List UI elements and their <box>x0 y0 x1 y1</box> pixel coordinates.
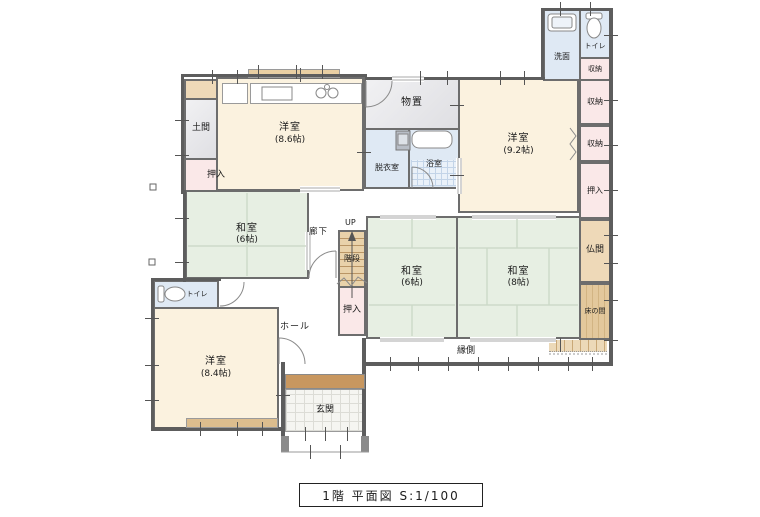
room-label-monooki: 物置 <box>401 97 423 108</box>
label-rouka: 廊下 <box>309 225 328 237</box>
genkan-post <box>281 436 289 452</box>
wall-bottom-east <box>365 362 613 366</box>
room-label-kaidan: 階段 <box>344 254 360 263</box>
room-label-shuunou-1: 収納 <box>588 65 602 73</box>
wall-top-center <box>365 77 545 80</box>
freestanding-post <box>150 184 156 190</box>
wall-senmen-left <box>541 8 544 80</box>
dimension-tick <box>524 71 525 85</box>
room-label-tokonoma: 床の間 <box>585 307 606 315</box>
dimension-tick <box>340 445 341 459</box>
kitchen-counter <box>250 83 362 104</box>
room-doma: 土間 <box>184 98 218 160</box>
room-oshiire-under-stairs: 押入 <box>338 286 366 336</box>
room-butsuma: 仏間 <box>579 219 611 283</box>
dimension-tick <box>604 263 618 264</box>
dimension-tick <box>508 357 509 371</box>
dimension-tick <box>604 145 618 146</box>
dimension-tick <box>604 190 618 191</box>
room-label-doma: 土間 <box>192 123 210 133</box>
room-label-oshiire-northwest: 押入 <box>207 170 225 180</box>
stairs-up-label: UP <box>345 218 356 227</box>
dimension-tick <box>145 365 159 366</box>
wall-west-washitsu <box>183 190 186 282</box>
dimension-tick <box>590 2 591 16</box>
room-size-youshitsu-8-4: (8.4帖) <box>201 369 231 380</box>
dimension-tick <box>347 427 348 441</box>
dimension-tick <box>325 427 326 441</box>
room-tokonoma: 床の間 <box>579 283 611 340</box>
dimension-tick <box>300 68 301 82</box>
room-label-butsuma: 仏間 <box>586 245 604 255</box>
room-label-hall: ホール <box>280 322 310 332</box>
label-hall: ホール <box>280 319 310 332</box>
dimension-tick <box>418 357 419 371</box>
genkan-post <box>361 436 369 452</box>
dimension-tick <box>357 152 371 153</box>
dimension-tick <box>305 427 306 441</box>
room-washitsu-8: 和室 (8帖) <box>456 216 581 339</box>
wall-east <box>609 8 613 366</box>
room-label-toire-west: トイレ <box>187 290 208 298</box>
refrigerator <box>222 83 248 104</box>
freestanding-post <box>149 259 155 265</box>
dimension-tick <box>175 262 189 263</box>
hall-door-arc <box>279 338 305 364</box>
room-washitsu-6-center: 和室 (6帖) <box>366 216 458 339</box>
drawing-title: 1階 平面図 S:1/100 <box>322 487 460 504</box>
room-label-washitsu-8: 和室 <box>508 266 530 277</box>
room-youshitsu-9-2: 洋室 (9.2帖) <box>458 77 579 213</box>
dimension-tick <box>390 357 391 371</box>
dimension-tick <box>450 105 464 106</box>
room-senmen: 洗面 <box>543 9 581 81</box>
dimension-tick <box>212 70 213 84</box>
dimension-tick <box>276 395 290 396</box>
room-label-washitsu-6a: 和室 <box>236 223 258 234</box>
room-label-youshitsu-9-2: 洋室 <box>508 133 530 144</box>
room-size-washitsu-6a: (6帖) <box>236 235 258 246</box>
dimension-tick <box>262 422 263 436</box>
genkan-step <box>285 374 365 389</box>
dimension-tick <box>604 100 618 101</box>
dimension-tick <box>450 175 464 176</box>
dimension-tick <box>560 338 561 352</box>
room-label-senmen: 洗面 <box>554 52 570 61</box>
dimension-tick <box>200 422 201 436</box>
dimension-tick <box>500 71 501 85</box>
room-size-youshitsu-9-2: (9.2帖) <box>503 146 533 157</box>
wall-top-west <box>181 74 367 77</box>
dimension-tick <box>175 218 189 219</box>
dimension-tick <box>420 71 421 85</box>
dimension-tick <box>560 2 561 16</box>
dimension-tick <box>592 357 593 371</box>
room-label-datsuishitsu: 脱衣室 <box>375 163 399 172</box>
toilet-vestibule-door-arc <box>220 282 244 306</box>
room-datsuishitsu: 脱衣室 <box>364 128 410 189</box>
room-shuunou-1: 収納 <box>579 57 611 81</box>
room-kaidan: 階段 <box>338 230 366 288</box>
room-toire-west: トイレ <box>153 280 219 309</box>
dimension-tick <box>322 65 323 79</box>
room-size-kitchen: (8.6帖) <box>275 135 305 146</box>
room-shuunou-3: 収納 <box>579 125 611 162</box>
corridor-door-arc <box>309 251 336 278</box>
room-size-washitsu-8: (8帖) <box>508 278 530 289</box>
dimension-tick <box>258 65 259 79</box>
dimension-tick <box>604 340 618 341</box>
room-youshitsu-8-4: 洋室 (8.4帖) <box>153 307 279 429</box>
room-label-toire-northeast: トイレ <box>585 42 606 50</box>
room-label-shuunou-3: 収納 <box>587 139 603 148</box>
dimension-tick <box>175 120 189 121</box>
dimension-tick <box>568 357 569 371</box>
dimension-tick <box>310 445 311 459</box>
engawa-wood-step <box>549 340 607 352</box>
label-up: UP <box>345 218 356 227</box>
room-label-oshiire-under-stairs: 押入 <box>343 305 361 315</box>
floor-plan-canvas: 土間 押入 洋室 (8.6帖) 物置 脱衣室 浴室 洋室 (9.2帖) 洗面 ト… <box>0 0 760 517</box>
room-label-shuunou-2: 収納 <box>587 97 603 106</box>
room-shuunou-2: 収納 <box>579 79 611 125</box>
dimension-tick <box>296 65 297 79</box>
dimension-tick <box>145 318 159 319</box>
room-monooki: 物置 <box>364 77 460 130</box>
room-label-youshitsu-8-4: 洋室 <box>205 356 227 367</box>
room-washitsu-6-northwest: 和室 (6帖) <box>185 190 309 279</box>
wall-toire-west-top <box>151 278 221 281</box>
room-genkan: 玄関 <box>285 389 365 432</box>
dimension-tick <box>447 71 448 85</box>
room-label-washitsu-6b: 和室 <box>401 266 423 277</box>
dimension-tick <box>145 400 159 401</box>
drawing-title-box: 1階 平面図 S:1/100 <box>299 483 483 507</box>
dimension-tick <box>604 300 618 301</box>
room-label-oshiire-east: 押入 <box>587 186 603 195</box>
dimension-tick <box>237 422 238 436</box>
wall-senmen-top <box>541 8 613 11</box>
dimension-tick <box>478 357 479 371</box>
room-label-rouka: 廊下 <box>309 227 328 237</box>
wall-west-upper <box>181 74 184 194</box>
room-label-yokushitsu: 浴室 <box>426 159 442 168</box>
room-label-genkan: 玄関 <box>316 405 334 415</box>
room-label-kitchen: 洋室 <box>279 122 301 133</box>
dimension-tick <box>604 235 618 236</box>
room-size-washitsu-6b: (6帖) <box>401 278 423 289</box>
room-toire-northeast: トイレ <box>579 9 611 59</box>
wall-west-lower <box>151 278 154 431</box>
dimension-tick <box>538 357 539 371</box>
dimension-tick <box>175 155 189 156</box>
dimension-tick <box>448 357 449 371</box>
dimension-tick <box>604 35 618 36</box>
dimension-tick <box>237 70 238 84</box>
room-label-engawa: 縁側 <box>457 346 475 356</box>
